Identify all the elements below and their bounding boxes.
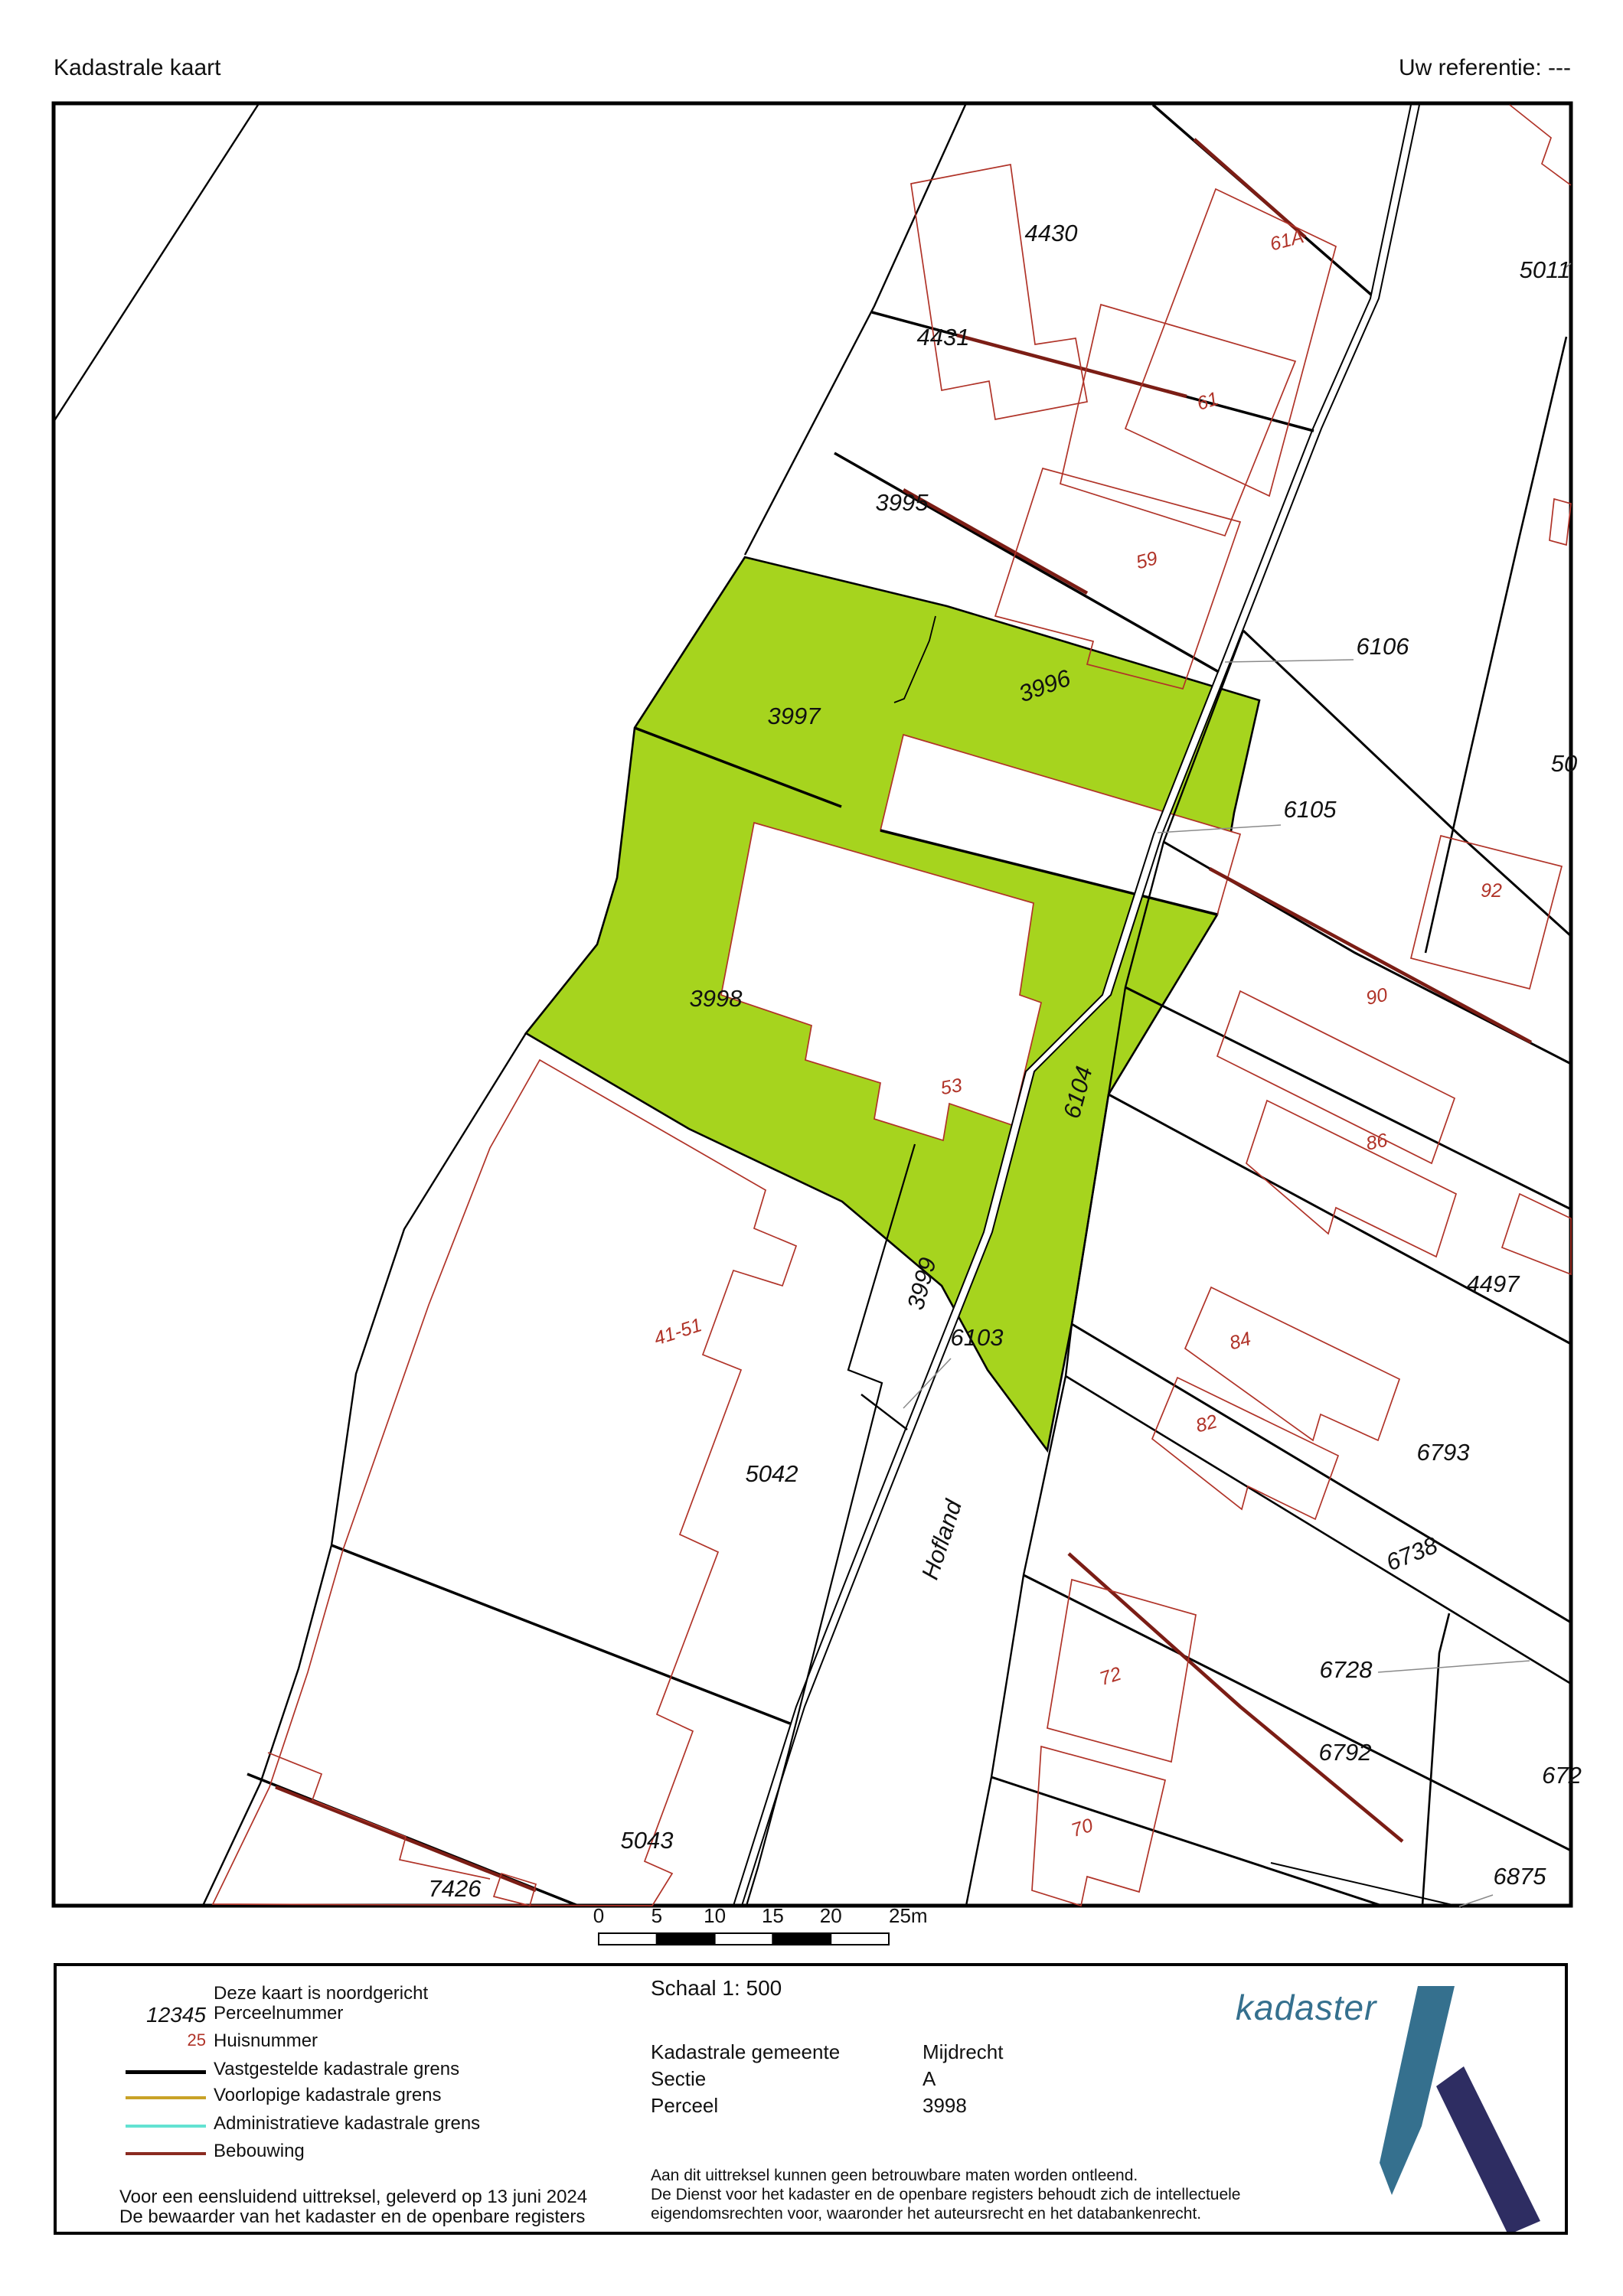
parcel-number-label: 6105	[1284, 796, 1337, 823]
building-70	[1032, 1746, 1165, 1906]
house-number-label: 70	[1069, 1815, 1096, 1841]
leader-line-3	[1378, 1661, 1530, 1672]
legend-footer-line: De bewaarder van het kadaster en de open…	[119, 2206, 585, 2228]
disclaimer-line: eigendomsrechten voor, waaronder het aut…	[651, 2205, 1201, 2223]
scale-bar-tick: 20	[820, 1904, 842, 1927]
kadaster-wordmark: kadaster	[1236, 1987, 1376, 2028]
legend-row-label: Perceelnummer	[214, 2003, 343, 2024]
building-90	[1217, 991, 1455, 1163]
building-on-boundary-0	[957, 335, 1187, 396]
boundary-672-column	[1422, 1613, 1449, 1906]
parcel-number-label: 6793	[1417, 1439, 1470, 1466]
building-41-51	[213, 1060, 796, 1906]
scale-bar-tick: 0	[593, 1904, 604, 1927]
boundary-6792-6875	[991, 1777, 1382, 1906]
parcel-number-label: 4497	[1467, 1270, 1521, 1297]
legend-symbol-line	[126, 2096, 206, 2099]
legend-symbol-line	[126, 2070, 206, 2074]
building-on-boundary-2	[1194, 139, 1305, 237]
legend-row-label: Huisnummer	[214, 2030, 318, 2052]
building-on-boundary-4	[1069, 1554, 1403, 1841]
building-84	[1185, 1287, 1399, 1440]
boundary-6728-6792	[1024, 1575, 1571, 1851]
scale-text: Schaal 1: 500	[651, 1976, 782, 2001]
detail-field-value: A	[923, 2067, 936, 2091]
boundary-5011-92block	[1243, 631, 1571, 936]
parcel-number-label: 7426	[429, 1875, 482, 1902]
boundary-5042-5043	[331, 1545, 790, 1724]
legend-footer-line: Voor een eensluidend uittreksel, gelever…	[119, 2187, 587, 2208]
house-number-label: 92	[1481, 880, 1502, 902]
parcel-number-label: 5043	[621, 1827, 674, 1854]
parcel-number-label: 6738	[1383, 1531, 1442, 1577]
parcel-number-label: 50	[1551, 750, 1577, 777]
disclaimer-line: De Dienst voor het kadaster en de openba…	[651, 2186, 1240, 2204]
leader-line-2	[903, 1358, 951, 1408]
building-on-boundary-1	[903, 490, 1087, 593]
scale-bar-tick: 10	[704, 1904, 726, 1927]
legend-symbol-line	[126, 2125, 206, 2128]
parcel-number-label: 5042	[746, 1460, 798, 1487]
parcel-number-label: 6792	[1319, 1739, 1372, 1766]
detail-field-label: Perceel	[651, 2094, 718, 2118]
street-name-label: Hofland	[916, 1495, 968, 1583]
parcel-line-topleft	[54, 105, 258, 422]
boundary-50-column	[1425, 337, 1566, 953]
building-86	[1246, 1101, 1456, 1257]
house-number-label: 72	[1097, 1663, 1124, 1690]
house-number-label: 84	[1227, 1328, 1253, 1354]
detail-field-label: Kadastrale gemeente	[651, 2040, 840, 2064]
parcel-number-label: 3999	[902, 1254, 942, 1313]
legend-row-label: Vastgestelde kadastrale grens	[214, 2059, 459, 2080]
house-number-label: 90	[1364, 984, 1390, 1009]
building-61	[1060, 305, 1295, 536]
parcel-number-label: 672	[1542, 1762, 1582, 1789]
parcel-number-label: 4430	[1025, 220, 1078, 246]
boundary-4497-6793	[1109, 1094, 1571, 1344]
house-number-label: 53	[939, 1075, 963, 1099]
house-number-label: 59	[1134, 547, 1160, 573]
building-4430	[911, 165, 1087, 419]
scale-bar-segment	[831, 1933, 889, 1945]
detail-field-value: 3998	[923, 2094, 967, 2118]
cadastral-map: 4430443139955011610639973996610550399861…	[0, 0, 1623, 2296]
building-topright-partial	[1510, 105, 1571, 185]
legend-symbol-text: 25	[122, 2030, 206, 2050]
parcel-number-label: 6875	[1494, 1863, 1547, 1890]
detail-field-value: Mijdrecht	[923, 2040, 1003, 2064]
detail-field-label: Sectie	[651, 2067, 706, 2091]
boundary-3998-south-ext	[861, 1394, 907, 1430]
boundary-90-86	[1125, 987, 1571, 1209]
legend-symbol-text: 12345	[122, 2003, 206, 2027]
building-72	[1047, 1580, 1196, 1762]
scale-bar-segment	[715, 1933, 773, 1945]
building-ne-corner	[1550, 499, 1571, 545]
building-82	[1152, 1378, 1338, 1519]
house-number-label: 82	[1194, 1411, 1220, 1437]
boundary-6793-6738	[1072, 1324, 1571, 1623]
parcel-number-label: 6106	[1357, 633, 1410, 660]
scale-bar-tick: 5	[651, 1904, 662, 1927]
scale-bar-segment	[599, 1933, 657, 1945]
house-number-label: 61	[1194, 388, 1221, 415]
leader-line-0	[1225, 660, 1354, 662]
building-4497-east	[1502, 1194, 1571, 1274]
parcel-number-label: 4431	[917, 324, 970, 351]
scale-bar-segment	[772, 1933, 831, 1945]
scale-bar-tick: 25m	[889, 1904, 928, 1927]
parcel-number-label: 6103	[951, 1324, 1004, 1351]
house-number-label: 86	[1364, 1130, 1390, 1155]
parcel-number-label: 3997	[768, 703, 822, 729]
north-note: Deze kaart is noordgericht	[214, 1983, 428, 2004]
kadastral-extract-page: Kadastrale kaart Uw referentie: --- 4430…	[0, 0, 1623, 2296]
parcel-number-label: 6728	[1320, 1656, 1373, 1683]
disclaimer-line: Aan dit uittreksel kunnen geen betrouwba…	[651, 2167, 1138, 2185]
scale-bar-tick: 15	[762, 1904, 784, 1927]
legend-row-label: Administratieve kadastrale grens	[214, 2113, 480, 2135]
legend-row-label: Bebouwing	[214, 2141, 305, 2162]
parcel-number-label: 5011	[1520, 256, 1571, 283]
scale-bar-segment	[657, 1933, 715, 1945]
legend-row-label: Voorlopige kadastrale grens	[214, 2085, 442, 2106]
house-number-label: 41-51	[651, 1314, 704, 1349]
parcel-number-label: 3998	[690, 985, 743, 1012]
parcel-number-label: 3995	[876, 489, 929, 516]
legend-symbol-line	[126, 2152, 206, 2155]
house-number-label: 61A	[1268, 226, 1306, 256]
